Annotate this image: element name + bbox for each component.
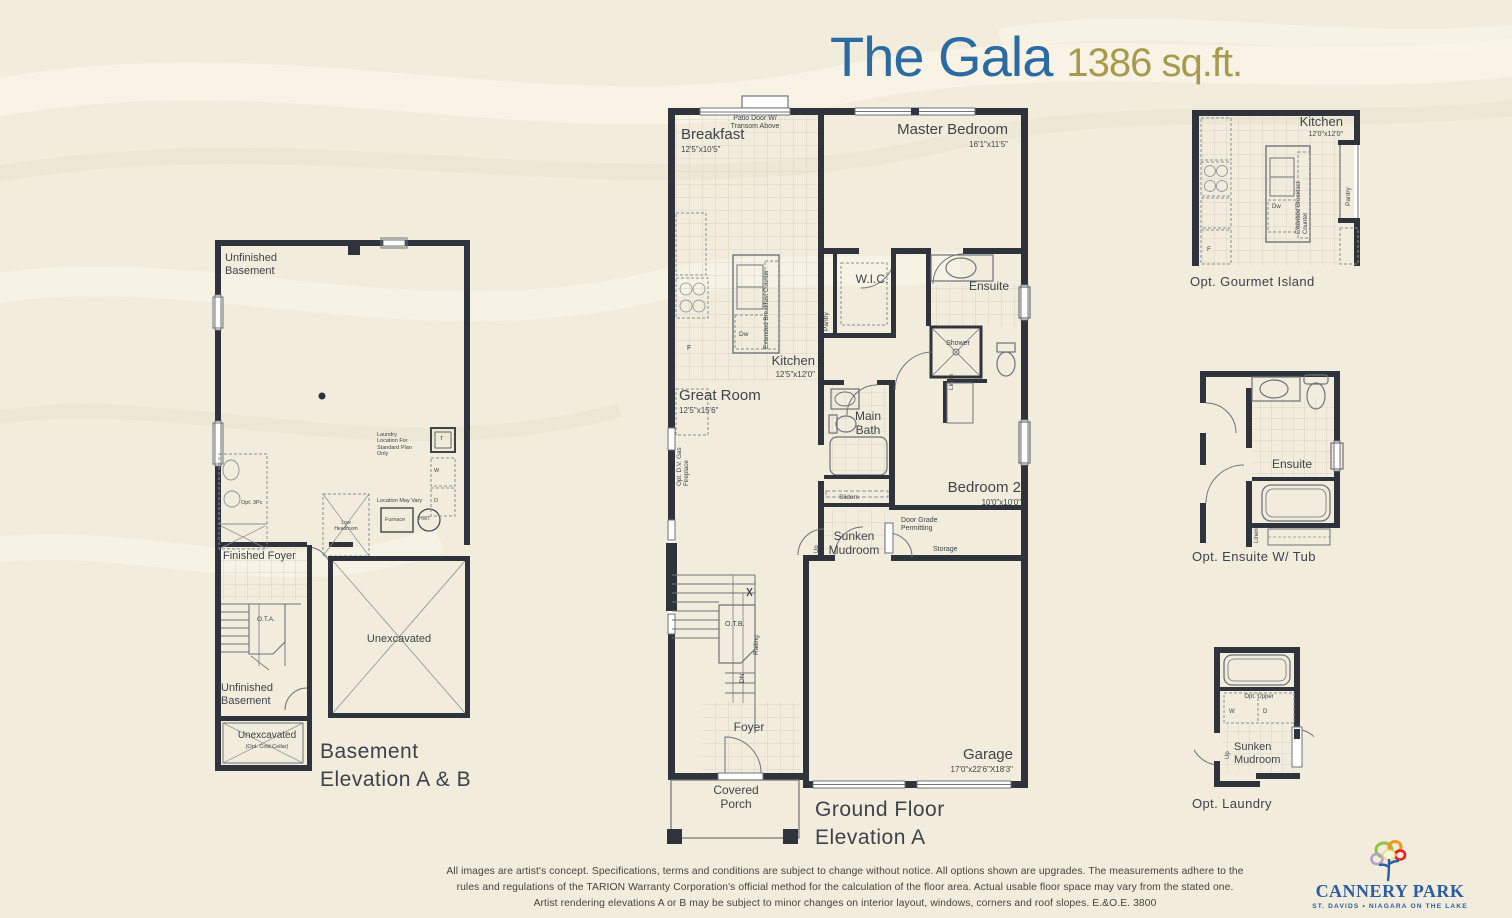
ensuite-tub-drawing xyxy=(1194,363,1349,548)
brochure-page: The Gala1386 sq.ft. xyxy=(0,0,1512,918)
ground-floor-plan: Patio Door W/ Transom AboveBreakfast12'5… xyxy=(663,93,1031,848)
basement-plan: Unfinished BasementLaundry Location For … xyxy=(211,236,476,781)
dryer-label: D xyxy=(434,498,438,504)
garage-label: Garage xyxy=(903,746,1013,764)
laundry-drawing xyxy=(1194,643,1314,793)
fireplace-label: Opt. D.V. Gas Fireplace xyxy=(676,447,691,486)
unfinished-basement-label: Unfinished Basement xyxy=(225,252,277,278)
extended-counter-opt-label: Extended Breakfast Counter xyxy=(1296,165,1310,234)
main-bath-label: Main Bath xyxy=(845,409,891,437)
kitchen-dims: 12'5"x12'0" xyxy=(735,370,815,379)
railing-label: Railing xyxy=(753,635,761,655)
breakfast-label: Breakfast xyxy=(681,126,744,144)
ground-floor-caption: Ground Floor Elevation A xyxy=(815,796,945,853)
finished-foyer-label: Finished Foyer xyxy=(223,550,296,563)
gourmet-island-plan: Kitchen12'0"x12'0"PantryDwExtended Break… xyxy=(1190,106,1365,276)
washer-opt-label: W xyxy=(1229,709,1235,716)
kitchen-label: Kitchen xyxy=(735,353,815,368)
dn-label: DN xyxy=(739,674,747,683)
unfinished-basement2-label: Unfinished Basement xyxy=(221,682,273,708)
dw-label: Dw xyxy=(739,331,748,339)
ensuite-opt-label: Ensuite xyxy=(1256,457,1328,471)
ensuite-tub-plan: EnsuiteLinen xyxy=(1194,363,1349,548)
otb-label: O.T.B. xyxy=(725,621,744,629)
dw-opt-label: Dw xyxy=(1272,204,1281,211)
covered-porch-label: Covered Porch xyxy=(701,783,771,811)
cold-cellar-note: (Opt. Cold Cellar) xyxy=(229,744,305,750)
fridge-opt-label: F xyxy=(1207,246,1211,254)
furnace-label: Furnace xyxy=(385,517,405,523)
kitchen-opt-dims: 12'0"x12'0" xyxy=(1241,131,1343,139)
ota-label: O.T.A. xyxy=(257,616,275,624)
logo-name: CANNERY PARK xyxy=(1308,882,1472,900)
fridge-label: F xyxy=(687,345,691,353)
kitchen-opt-label: Kitchen xyxy=(1241,114,1343,129)
great-room-label: Great Room xyxy=(679,387,761,405)
plan-sqft: 1386 sq.ft. xyxy=(1066,41,1242,85)
bedroom2-label: Bedroom 2 xyxy=(893,479,1021,497)
logo-tagline: ST. DAVIDS • NIAGARA ON THE LAKE xyxy=(1308,903,1472,910)
shower-label: Shower xyxy=(935,340,981,348)
cannery-park-logo: CANNERY PARK ST. DAVIDS • NIAGARA ON THE… xyxy=(1308,840,1472,910)
tree-icon xyxy=(1364,840,1416,882)
pantry-label: Pantry xyxy=(823,312,831,331)
ground-floor-drawing xyxy=(663,93,1031,848)
gourmet-island-caption: Opt. Gourmet Island xyxy=(1190,273,1315,291)
sliders-label: Sliders xyxy=(828,494,870,502)
unexcavated-cold-label: Unexcavated xyxy=(229,730,305,742)
ensuite-label: Ensuite xyxy=(958,279,1020,293)
bedroom2-dims: 10'0"x10'0" xyxy=(893,498,1021,507)
disclaimer-text: All images are artist's concept. Specifi… xyxy=(430,864,1260,912)
washer-label: W xyxy=(434,468,439,474)
great-room-dims: 12'5"x15'6" xyxy=(679,406,718,415)
dryer-opt-label: D xyxy=(1263,709,1267,716)
basement-caption: Basement Elevation A & B xyxy=(320,738,471,795)
laundry-note: Laundry Location For Standard Plan Only xyxy=(377,432,412,458)
low-headroom-label: Low Headroom xyxy=(323,521,369,533)
laundry-caption: Opt. Laundry xyxy=(1192,795,1272,813)
mudroom-opt-label: Sunken Mudroom xyxy=(1234,741,1280,767)
opt-3pc-label: Opt. 3Pc xyxy=(241,500,262,506)
opt-upper-label: Opt. Upper xyxy=(1225,694,1293,701)
linen-label: Linen xyxy=(948,374,956,390)
door-grade-note: Door Grade Permitting xyxy=(901,517,938,534)
extended-counter-label: Extended Breakfast Counter xyxy=(763,270,770,349)
master-bedroom-label: Master Bedroom xyxy=(868,121,1008,139)
pantry-opt-label: Pantry xyxy=(1345,187,1353,206)
wic-label: W.I.C. xyxy=(847,272,897,286)
hwt-label: HWT xyxy=(419,517,430,523)
breakfast-dims: 12'5"x10'5" xyxy=(681,145,720,154)
laundry-plan: Opt. UpperWDUpSunken Mudroom xyxy=(1194,643,1314,793)
location-vary-note: Location May Vary xyxy=(377,498,422,504)
master-bedroom-dims: 16'1"x11'5" xyxy=(868,140,1008,149)
page-title: The Gala1386 sq.ft. xyxy=(830,24,1230,89)
garage-dims: 17'0"x22'6"X18'3" xyxy=(903,765,1013,774)
storage-label: Storage xyxy=(933,546,958,554)
up-label: Up xyxy=(814,545,821,553)
laundry-tub-label: T xyxy=(440,436,443,442)
foyer-label: Foyer xyxy=(723,720,775,734)
plan-name: The Gala xyxy=(830,25,1052,88)
unexcavated-label: Unexcavated xyxy=(339,633,459,646)
linen-opt-label: Linen xyxy=(1254,528,1261,543)
mudroom-label: Sunken Mudroom xyxy=(823,529,885,557)
up-opt-label: Up xyxy=(1225,751,1232,759)
ensuite-tub-caption: Opt. Ensuite W/ Tub xyxy=(1192,548,1316,566)
